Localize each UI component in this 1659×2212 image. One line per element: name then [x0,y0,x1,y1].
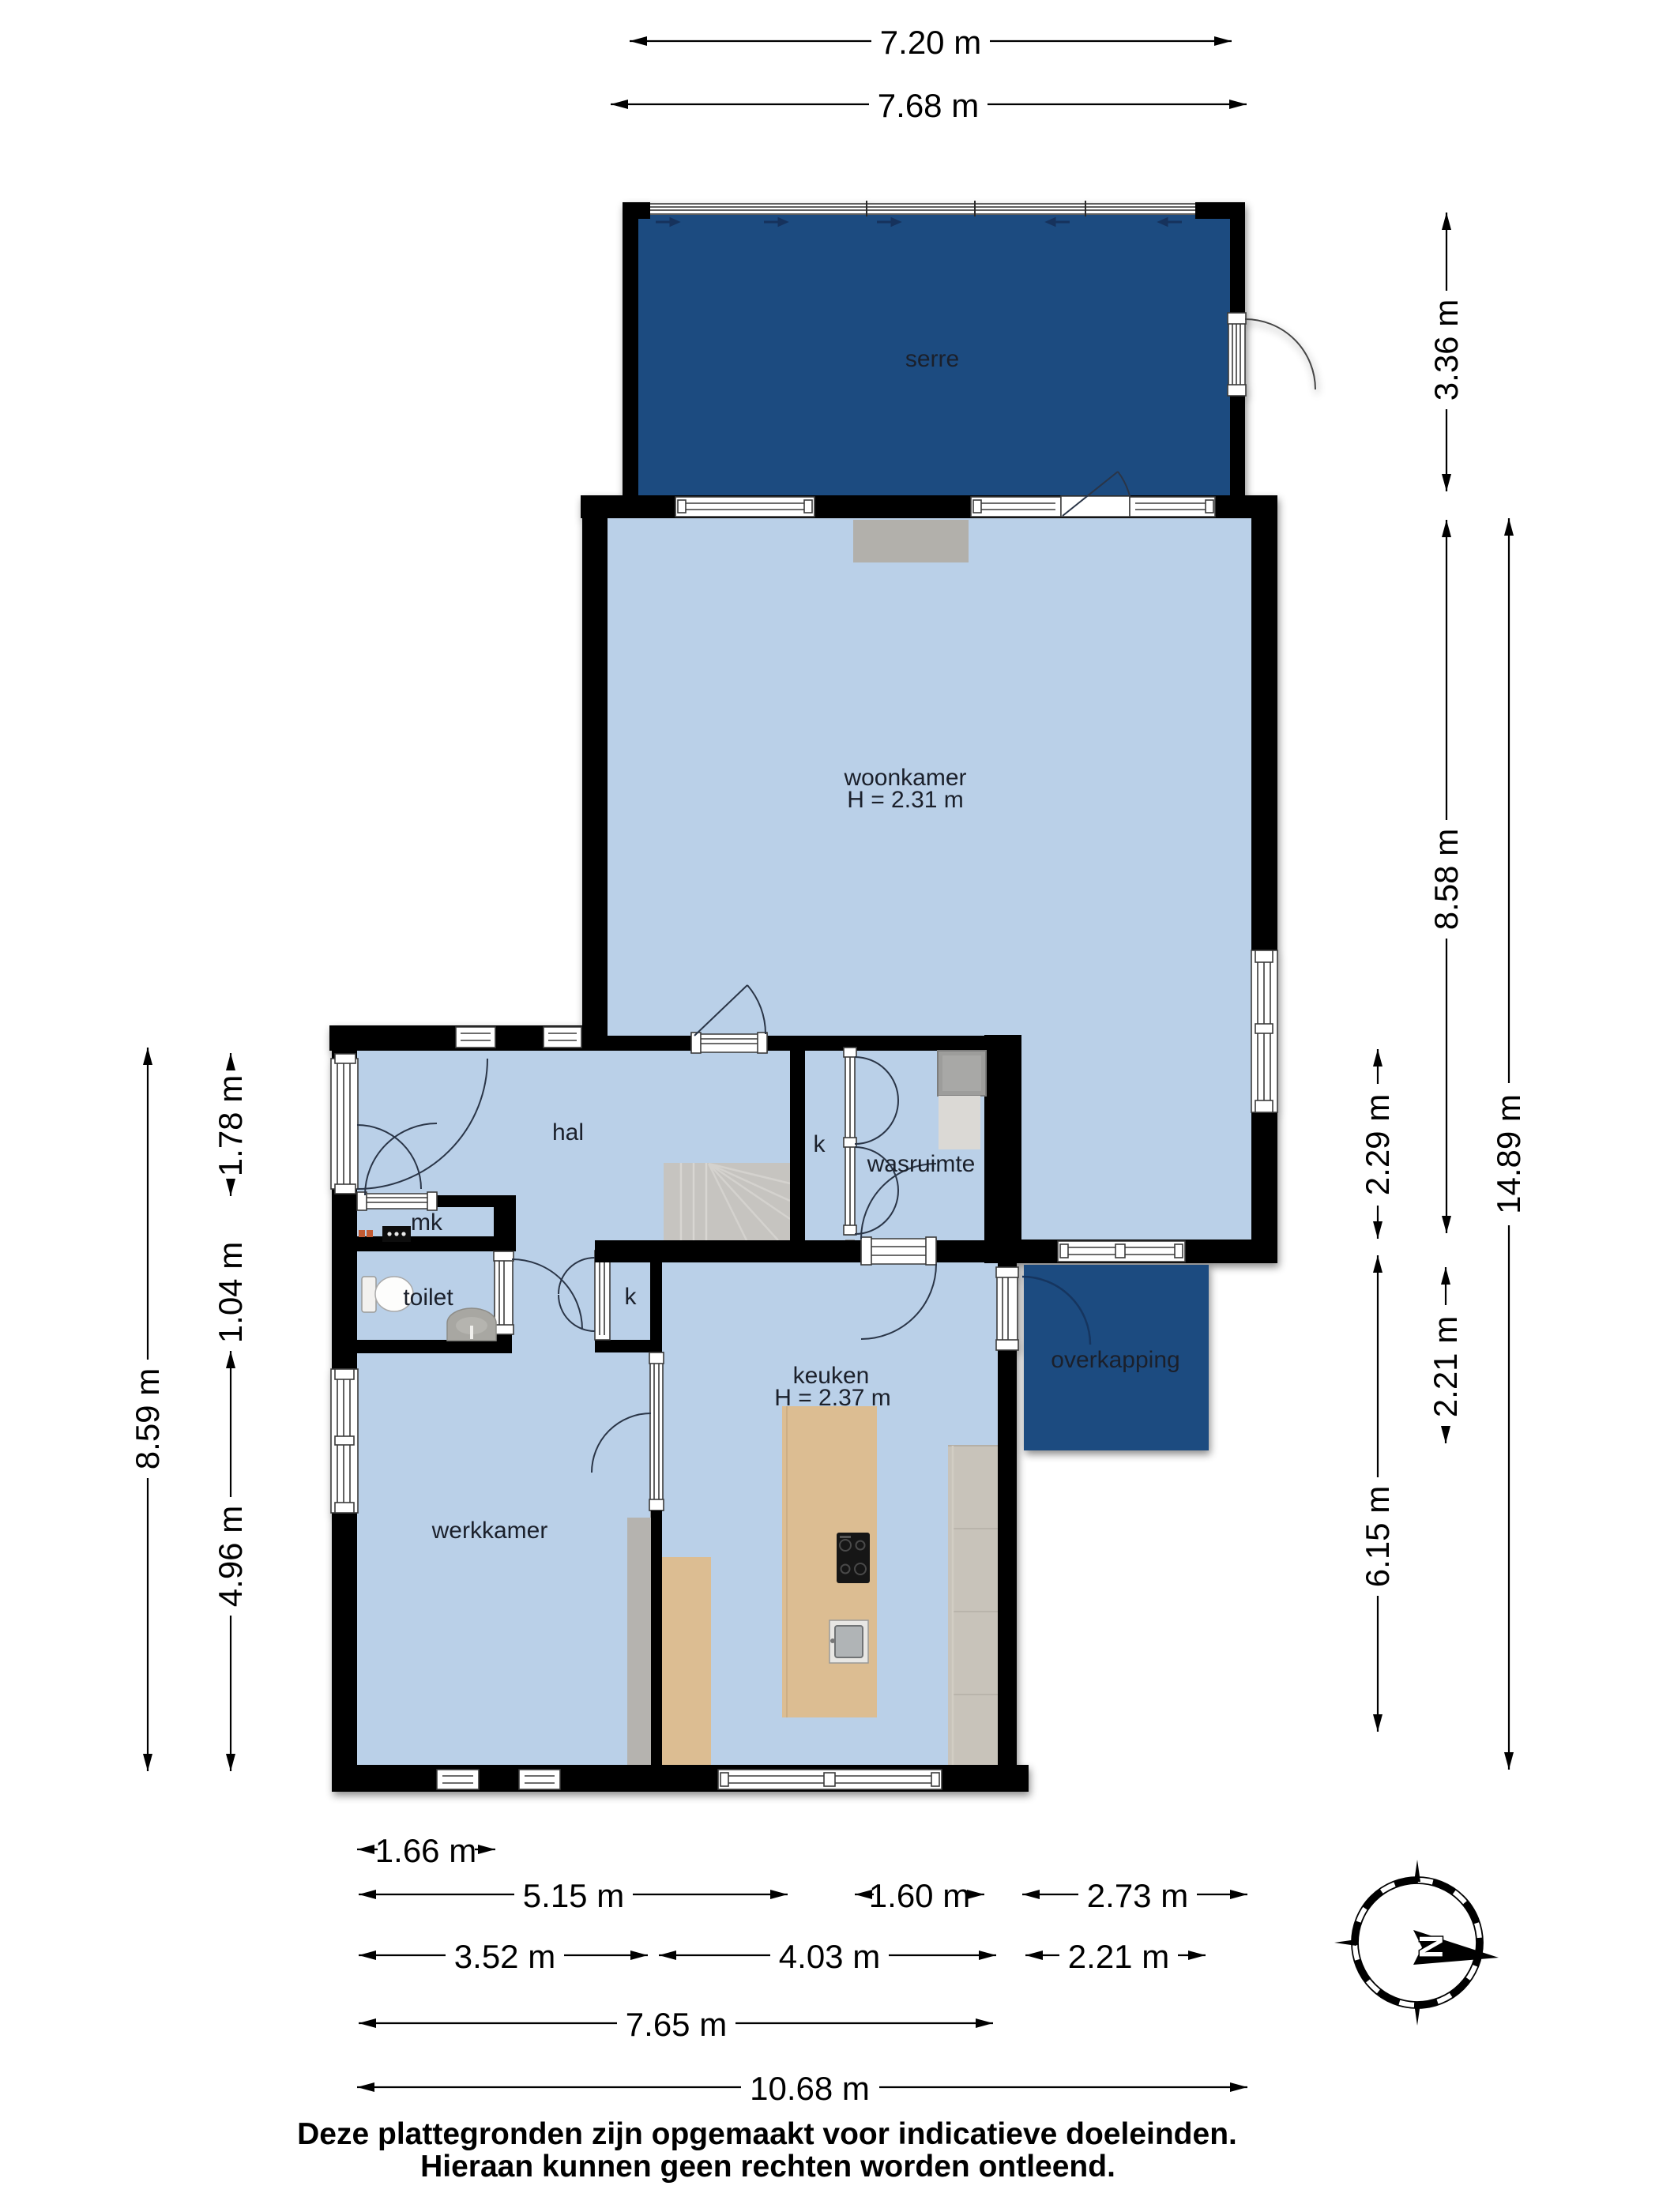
svg-text:8.58 m: 8.58 m [1428,829,1465,930]
svg-text:k: k [814,1131,826,1157]
svg-text:4.96 m: 4.96 m [212,1506,249,1607]
svg-text:7.20 m: 7.20 m [880,24,981,61]
svg-text:H = 2.37 m: H = 2.37 m [774,1385,891,1411]
svg-text:1.78 m: 1.78 m [212,1075,249,1176]
svg-text:toilet: toilet [403,1285,453,1311]
svg-text:5.15 m: 5.15 m [523,1877,624,1914]
svg-text:1.66 m: 1.66 m [375,1832,476,1869]
svg-text:10.68 m: 10.68 m [750,2070,870,2107]
svg-text:Hieraan kunnen geen rechten wo: Hieraan kunnen geen rechten worden ontle… [420,2150,1115,2184]
svg-text:7.68 m: 7.68 m [878,87,979,124]
svg-text:8.59 m: 8.59 m [129,1368,166,1469]
svg-text:hal: hal [552,1119,584,1145]
svg-text:1.60 m: 1.60 m [869,1877,970,1914]
svg-text:2.21 m: 2.21 m [1068,1938,1169,1975]
svg-text:werkkamer: werkkamer [431,1518,548,1544]
svg-text:4.03 m: 4.03 m [779,1938,880,1975]
svg-text:2.73 m: 2.73 m [1087,1877,1188,1914]
svg-text:3.36 m: 3.36 m [1428,299,1465,401]
svg-text:wasruimte: wasruimte [867,1151,976,1177]
svg-text:mk: mk [411,1209,443,1236]
svg-text:1.04 m: 1.04 m [212,1242,249,1343]
svg-text:14.89 m: 14.89 m [1490,1094,1527,1214]
svg-text:N: N [1413,1935,1450,1958]
svg-text:Deze plattegronden zijn opgema: Deze plattegronden zijn opgemaakt voor i… [297,2117,1237,2151]
svg-text:7.65 m: 7.65 m [626,2006,727,2043]
svg-text:H = 2.31 m: H = 2.31 m [847,787,964,813]
svg-text:3.52 m: 3.52 m [454,1938,555,1975]
svg-text:2.21 m: 2.21 m [1427,1316,1464,1417]
svg-text:overkapping: overkapping [1051,1347,1179,1373]
svg-text:6.15 m: 6.15 m [1359,1486,1396,1587]
svg-text:2.29 m: 2.29 m [1359,1094,1396,1195]
svg-text:serre: serre [905,346,959,372]
svg-text:k: k [625,1284,638,1310]
